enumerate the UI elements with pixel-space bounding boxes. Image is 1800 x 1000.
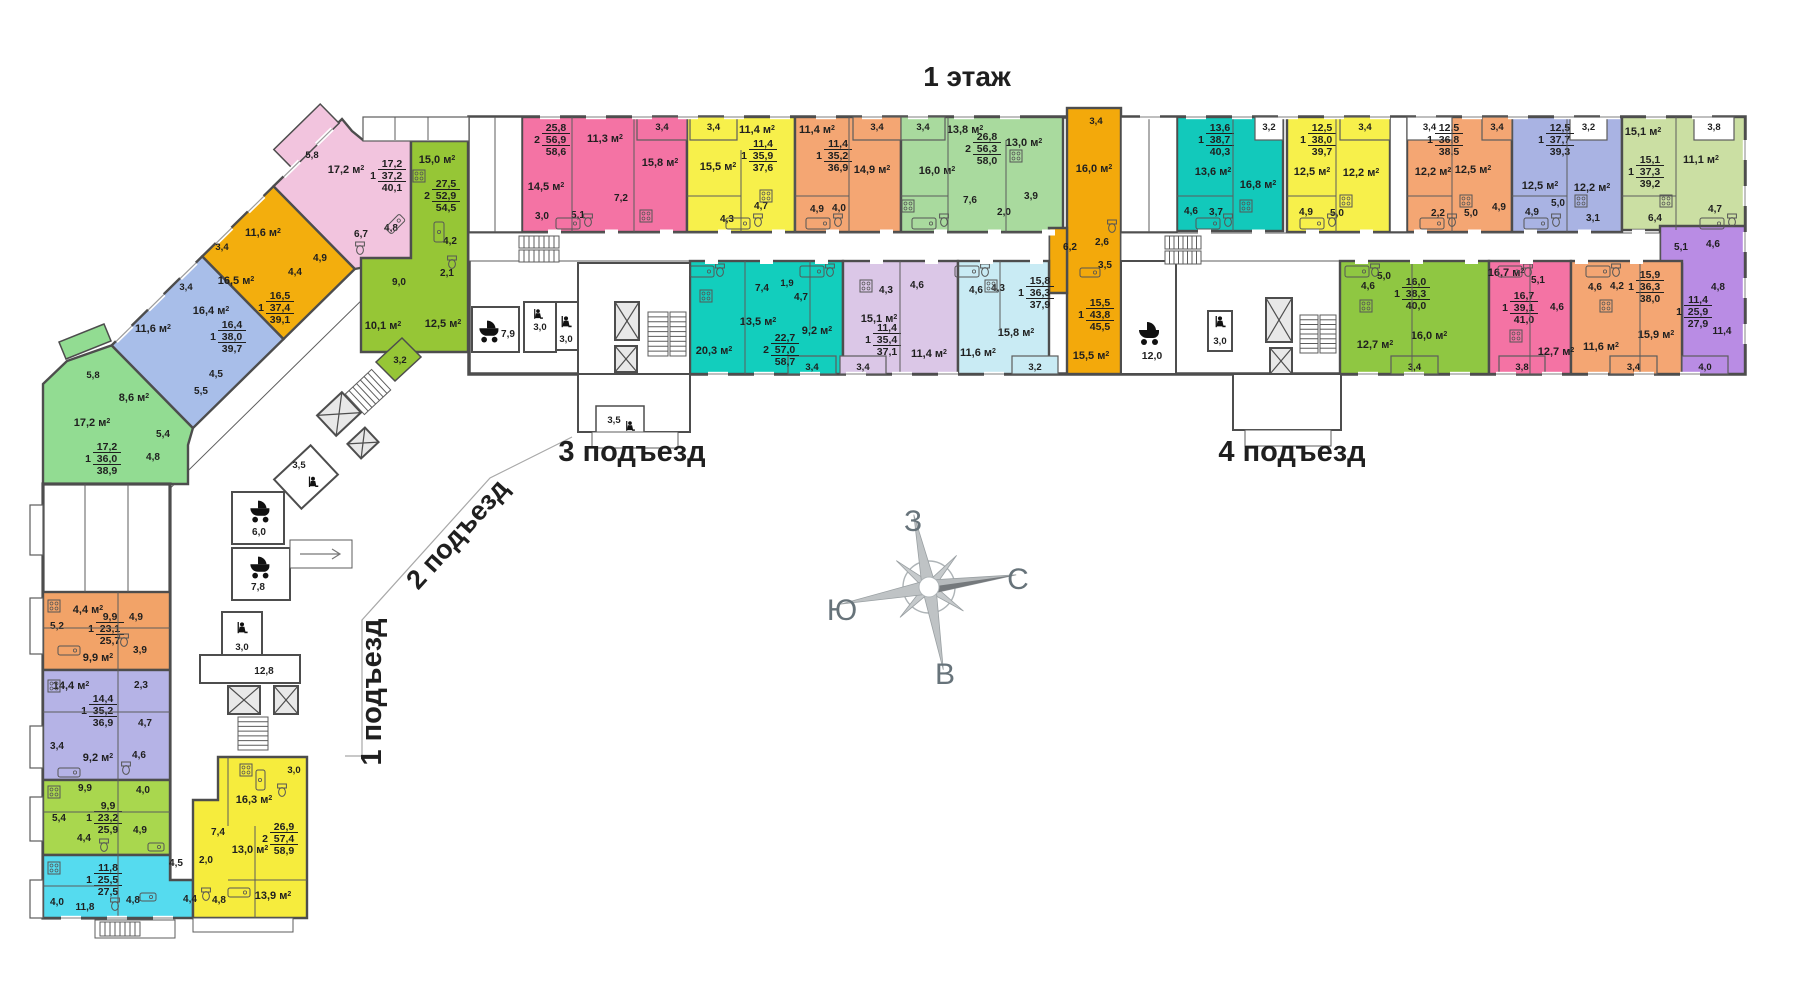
svg-text:4,7: 4,7 <box>754 201 768 212</box>
svg-text:1: 1 <box>1538 134 1544 146</box>
svg-text:1,9: 1,9 <box>780 278 793 289</box>
svg-text:37,9: 37,9 <box>1030 299 1051 311</box>
svg-text:11,4: 11,4 <box>1713 326 1732 337</box>
svg-text:2,3: 2,3 <box>134 680 148 691</box>
svg-text:1: 1 <box>258 302 264 314</box>
svg-text:2: 2 <box>763 344 769 356</box>
svg-text:16,4: 16,4 <box>222 319 243 331</box>
svg-text:26,9: 26,9 <box>274 821 295 833</box>
svg-text:11,8: 11,8 <box>76 902 95 913</box>
svg-text:41,0: 41,0 <box>1514 314 1535 326</box>
svg-text:35,2: 35,2 <box>828 150 849 162</box>
svg-text:4,6: 4,6 <box>1361 281 1375 292</box>
svg-text:16,0 м2: 16,0 м2 <box>1076 163 1113 175</box>
svg-text:3,4: 3,4 <box>916 122 930 133</box>
svg-text:37,4: 37,4 <box>270 302 291 314</box>
svg-text:4,4: 4,4 <box>77 833 91 844</box>
svg-text:22,7: 22,7 <box>775 332 796 344</box>
svg-text:11,4: 11,4 <box>877 322 897 334</box>
svg-text:3,0: 3,0 <box>533 322 546 333</box>
svg-text:17,2 м2: 17,2 м2 <box>74 417 111 429</box>
svg-text:11,4 м2: 11,4 м2 <box>799 124 835 136</box>
svg-text:13,6 м2: 13,6 м2 <box>1195 166 1232 178</box>
svg-text:56,9: 56,9 <box>546 134 567 146</box>
svg-text:5,4: 5,4 <box>156 429 170 440</box>
svg-text:4,2: 4,2 <box>443 236 457 247</box>
svg-text:13,9 м2: 13,9 м2 <box>255 890 292 902</box>
svg-text:58,7: 58,7 <box>775 356 796 368</box>
svg-text:12,5 м2: 12,5 м2 <box>1455 164 1492 176</box>
svg-text:В: В <box>935 658 955 691</box>
svg-text:11,6 м2: 11,6 м2 <box>960 347 996 359</box>
svg-text:4,5: 4,5 <box>209 369 223 380</box>
svg-text:38,0: 38,0 <box>1312 134 1333 146</box>
svg-text:58,0: 58,0 <box>977 155 998 167</box>
svg-text:3,4: 3,4 <box>50 741 64 752</box>
svg-text:4,3: 4,3 <box>879 285 893 296</box>
svg-text:13,0 м2: 13,0 м2 <box>232 844 269 856</box>
svg-text:9,9: 9,9 <box>103 611 118 623</box>
svg-text:4,3: 4,3 <box>720 214 734 225</box>
svg-text:4,4 м2: 4,4 м2 <box>73 604 104 616</box>
svg-text:1: 1 <box>81 705 87 717</box>
svg-text:С: С <box>1007 563 1029 596</box>
svg-text:8,6 м2: 8,6 м2 <box>119 392 150 404</box>
svg-text:1: 1 <box>86 812 92 824</box>
svg-text:40,1: 40,1 <box>382 182 403 194</box>
svg-text:4,0: 4,0 <box>50 897 64 908</box>
svg-text:36,3: 36,3 <box>1030 287 1051 299</box>
svg-text:4,0: 4,0 <box>136 785 150 796</box>
svg-text:3,4: 3,4 <box>215 242 229 253</box>
svg-text:26,8: 26,8 <box>977 131 998 143</box>
svg-text:5,2: 5,2 <box>50 621 64 632</box>
svg-text:3,2: 3,2 <box>1262 122 1275 133</box>
svg-text:3,8: 3,8 <box>1515 362 1528 373</box>
svg-text:4,0: 4,0 <box>1698 362 1711 373</box>
svg-text:7,2: 7,2 <box>614 193 628 204</box>
svg-text:5,5: 5,5 <box>194 386 208 397</box>
svg-text:9,9: 9,9 <box>101 800 116 812</box>
svg-text:38,0: 38,0 <box>1640 293 1661 305</box>
svg-text:9,2 м2: 9,2 м2 <box>802 325 833 337</box>
svg-text:7,9: 7,9 <box>501 329 515 340</box>
svg-text:9,0: 9,0 <box>392 277 406 288</box>
svg-text:15,8: 15,8 <box>1030 275 1051 287</box>
svg-text:12,2 м2: 12,2 м2 <box>1343 167 1380 179</box>
svg-text:5,1: 5,1 <box>1674 242 1688 253</box>
svg-text:4,6: 4,6 <box>1184 206 1198 217</box>
svg-text:4,6: 4,6 <box>910 280 924 291</box>
svg-text:2,0: 2,0 <box>199 855 213 866</box>
svg-text:4,9: 4,9 <box>810 204 824 215</box>
svg-text:3,4: 3,4 <box>1408 362 1422 373</box>
svg-text:38,3: 38,3 <box>1406 288 1427 300</box>
svg-text:27,5: 27,5 <box>436 178 457 190</box>
svg-text:15,0 м2: 15,0 м2 <box>419 154 456 166</box>
svg-text:7,6: 7,6 <box>963 195 977 206</box>
svg-text:57,4: 57,4 <box>274 833 295 845</box>
svg-text:1: 1 <box>1018 287 1024 299</box>
svg-text:1: 1 <box>1628 281 1634 293</box>
svg-text:5,0: 5,0 <box>1464 208 1478 219</box>
svg-text:3,2: 3,2 <box>1582 122 1595 133</box>
svg-text:3,4: 3,4 <box>707 122 721 133</box>
svg-text:12,5 м2: 12,5 м2 <box>1522 180 1559 192</box>
svg-text:3,4: 3,4 <box>1423 122 1437 133</box>
svg-text:15,1: 15,1 <box>1640 154 1661 166</box>
svg-text:4,6: 4,6 <box>969 285 983 296</box>
svg-text:16,0 м2: 16,0 м2 <box>919 165 956 177</box>
svg-text:12,5 м2: 12,5 м2 <box>425 318 462 330</box>
svg-text:3,4: 3,4 <box>1089 116 1103 127</box>
svg-text:3,8: 3,8 <box>1707 122 1720 133</box>
svg-text:15,8 м2: 15,8 м2 <box>642 157 679 169</box>
svg-text:4,8: 4,8 <box>1711 282 1725 293</box>
svg-text:12,8: 12,8 <box>254 666 274 677</box>
svg-text:1: 1 <box>85 453 91 465</box>
svg-text:16,8 м2: 16,8 м2 <box>1240 179 1277 191</box>
svg-text:37,6: 37,6 <box>753 162 774 174</box>
svg-text:39,2: 39,2 <box>1640 178 1661 190</box>
svg-text:1: 1 <box>1198 134 1204 146</box>
svg-text:56,3: 56,3 <box>977 143 998 155</box>
svg-text:4,9: 4,9 <box>1492 202 1506 213</box>
svg-text:4,9: 4,9 <box>129 612 143 623</box>
svg-text:9,9 м2: 9,9 м2 <box>83 652 114 664</box>
svg-text:3 подъезд: 3 подъезд <box>558 436 705 468</box>
svg-text:4,0: 4,0 <box>832 203 846 214</box>
svg-text:4,4: 4,4 <box>288 267 302 278</box>
svg-text:15,1 м2: 15,1 м2 <box>1625 126 1662 138</box>
svg-text:12,2 м2: 12,2 м2 <box>1574 182 1611 194</box>
svg-text:12,7 м2: 12,7 м2 <box>1538 346 1575 358</box>
svg-text:9,9: 9,9 <box>78 783 92 794</box>
svg-text:35,9: 35,9 <box>753 150 774 162</box>
svg-text:11,4 м2: 11,4 м2 <box>739 124 775 136</box>
svg-text:36,8: 36,8 <box>1439 134 1460 146</box>
svg-text:4,9: 4,9 <box>133 825 147 836</box>
svg-text:14,9 м2: 14,9 м2 <box>854 164 891 176</box>
svg-text:3,4: 3,4 <box>856 362 870 373</box>
svg-text:1: 1 <box>88 623 94 635</box>
svg-text:3,4: 3,4 <box>805 362 819 373</box>
svg-text:4,9: 4,9 <box>313 253 327 264</box>
svg-text:6,0: 6,0 <box>252 527 266 538</box>
svg-text:4,6: 4,6 <box>1550 302 1564 313</box>
svg-text:36,0: 36,0 <box>97 453 118 465</box>
svg-text:7,4: 7,4 <box>211 827 225 838</box>
svg-text:12,2 м2: 12,2 м2 <box>1415 166 1452 178</box>
svg-text:1: 1 <box>816 150 822 162</box>
svg-text:3,4: 3,4 <box>1490 122 1504 133</box>
svg-text:11,3 м2: 11,3 м2 <box>587 133 623 145</box>
svg-text:23,1: 23,1 <box>100 623 121 635</box>
svg-text:3,5: 3,5 <box>292 460 306 471</box>
svg-text:4,7: 4,7 <box>794 292 808 303</box>
svg-text:23,2: 23,2 <box>98 812 119 824</box>
svg-text:1: 1 <box>210 331 216 343</box>
svg-text:16,7: 16,7 <box>1514 290 1535 302</box>
svg-text:15,5: 15,5 <box>1090 297 1111 309</box>
svg-text:15,5 м2: 15,5 м2 <box>1073 350 1110 362</box>
svg-text:2: 2 <box>965 143 971 155</box>
svg-text:11,4: 11,4 <box>753 138 773 150</box>
svg-text:17,2: 17,2 <box>382 158 403 170</box>
svg-text:7,4: 7,4 <box>755 283 769 294</box>
svg-text:2,6: 2,6 <box>1095 237 1109 248</box>
svg-text:37,2: 37,2 <box>382 170 403 182</box>
svg-text:1: 1 <box>86 874 92 886</box>
svg-text:4,6: 4,6 <box>132 750 146 761</box>
svg-text:1: 1 <box>1427 134 1433 146</box>
svg-text:1: 1 <box>865 334 871 346</box>
svg-text:39,1: 39,1 <box>1514 302 1535 314</box>
svg-text:37,3: 37,3 <box>1640 166 1661 178</box>
svg-text:4,8: 4,8 <box>212 895 226 906</box>
svg-text:4,7: 4,7 <box>138 718 152 729</box>
svg-text:27,9: 27,9 <box>1688 318 1709 330</box>
svg-text:6,4: 6,4 <box>1648 213 1662 224</box>
svg-text:5,8: 5,8 <box>305 150 318 161</box>
svg-text:11,4: 11,4 <box>828 138 848 150</box>
svg-text:17,2: 17,2 <box>97 441 118 453</box>
svg-text:16,0 м2: 16,0 м2 <box>1411 330 1448 342</box>
svg-text:36,3: 36,3 <box>1640 281 1661 293</box>
svg-text:4,2: 4,2 <box>1610 281 1624 292</box>
svg-text:3,4: 3,4 <box>655 122 669 133</box>
svg-text:15,9 м2: 15,9 м2 <box>1638 329 1675 341</box>
svg-text:2,2: 2,2 <box>1431 208 1445 219</box>
svg-text:4,9: 4,9 <box>1299 207 1313 218</box>
svg-text:36,9: 36,9 <box>828 162 849 174</box>
svg-text:4,8: 4,8 <box>146 452 160 463</box>
svg-text:3,0: 3,0 <box>535 211 549 222</box>
svg-text:39,7: 39,7 <box>222 343 243 355</box>
svg-text:16,5 м2: 16,5 м2 <box>218 275 255 287</box>
svg-text:3,2: 3,2 <box>1028 362 1041 373</box>
svg-text:14,5 м2: 14,5 м2 <box>528 181 565 193</box>
svg-text:16,3 м2: 16,3 м2 <box>236 794 273 806</box>
svg-text:4,6: 4,6 <box>1588 282 1602 293</box>
svg-text:12,5 м2: 12,5 м2 <box>1294 166 1331 178</box>
svg-text:20,3 м2: 20,3 м2 <box>696 345 733 357</box>
svg-text:3,0: 3,0 <box>1213 336 1226 347</box>
svg-text:38,0: 38,0 <box>222 331 243 343</box>
svg-text:5,4: 5,4 <box>52 813 66 824</box>
svg-text:25,7: 25,7 <box>100 635 121 647</box>
svg-text:3,0: 3,0 <box>559 334 572 345</box>
svg-text:З: З <box>904 505 922 538</box>
svg-text:14,4: 14,4 <box>93 693 114 705</box>
svg-text:17,2 м2: 17,2 м2 <box>328 164 365 176</box>
svg-text:11,8: 11,8 <box>98 862 118 874</box>
svg-text:38,5: 38,5 <box>1439 146 1460 158</box>
svg-text:12,5: 12,5 <box>1312 122 1333 134</box>
svg-text:11,4 м2: 11,4 м2 <box>911 348 947 360</box>
svg-text:1: 1 <box>1394 288 1400 300</box>
svg-text:1: 1 <box>1676 306 1682 318</box>
svg-text:1: 1 <box>1078 309 1084 321</box>
svg-text:40,0: 40,0 <box>1406 300 1427 312</box>
svg-text:4,8: 4,8 <box>126 895 140 906</box>
svg-text:13,0 м2: 13,0 м2 <box>1006 137 1043 149</box>
svg-text:3,4: 3,4 <box>179 282 193 293</box>
svg-text:9,2 м2: 9,2 м2 <box>83 752 114 764</box>
svg-text:4,9: 4,9 <box>1525 207 1539 218</box>
svg-text:4 подъезд: 4 подъезд <box>1218 436 1365 468</box>
svg-text:15,8 м2: 15,8 м2 <box>998 327 1035 339</box>
svg-text:16,5: 16,5 <box>270 290 291 302</box>
svg-text:11,6 м2: 11,6 м2 <box>245 227 281 239</box>
svg-text:25,9: 25,9 <box>98 824 119 836</box>
svg-text:4,6: 4,6 <box>1706 239 1720 250</box>
svg-text:12,0: 12,0 <box>1142 350 1163 362</box>
svg-text:11,6 м2: 11,6 м2 <box>1583 341 1619 353</box>
svg-text:43,8: 43,8 <box>1090 309 1111 321</box>
svg-text:38,7: 38,7 <box>1210 134 1231 146</box>
svg-text:2,0: 2,0 <box>997 207 1011 218</box>
svg-text:40,3: 40,3 <box>1210 146 1231 158</box>
svg-text:4,7: 4,7 <box>1708 204 1722 215</box>
svg-text:1 этаж: 1 этаж <box>923 61 1012 92</box>
svg-text:58,6: 58,6 <box>546 146 567 158</box>
svg-text:3,9: 3,9 <box>133 645 147 656</box>
svg-text:2: 2 <box>534 134 540 146</box>
svg-text:13,6: 13,6 <box>1210 122 1231 134</box>
svg-text:3,1: 3,1 <box>1586 213 1600 224</box>
svg-text:3,9: 3,9 <box>1024 191 1038 202</box>
svg-text:1: 1 <box>1628 166 1634 178</box>
svg-text:14,4 м2: 14,4 м2 <box>53 680 90 692</box>
svg-text:1 подъезд: 1 подъезд <box>356 618 388 765</box>
svg-text:4,5: 4,5 <box>169 858 183 869</box>
svg-text:15,5 м2: 15,5 м2 <box>700 161 737 173</box>
svg-text:11,1 м2: 11,1 м2 <box>1683 154 1719 166</box>
svg-text:36,9: 36,9 <box>93 717 114 729</box>
svg-text:5,8: 5,8 <box>86 370 99 381</box>
svg-text:12,7 м2: 12,7 м2 <box>1357 339 1394 351</box>
svg-text:52,9: 52,9 <box>436 190 457 202</box>
svg-text:2,1: 2,1 <box>440 268 454 279</box>
svg-text:25,9: 25,9 <box>1688 306 1709 318</box>
svg-text:12,5: 12,5 <box>1439 122 1460 134</box>
svg-text:25,5: 25,5 <box>98 874 119 886</box>
svg-text:35,4: 35,4 <box>877 334 898 346</box>
svg-text:3,0: 3,0 <box>235 642 248 653</box>
svg-text:27,5: 27,5 <box>98 886 119 898</box>
svg-text:11,4: 11,4 <box>1688 294 1708 306</box>
svg-text:11,6 м2: 11,6 м2 <box>135 323 171 335</box>
svg-text:10,1 м2: 10,1 м2 <box>365 320 402 332</box>
svg-text:3,4: 3,4 <box>1358 122 1372 133</box>
svg-text:3,4: 3,4 <box>1627 362 1641 373</box>
svg-text:15,9: 15,9 <box>1640 269 1661 281</box>
svg-text:3,2: 3,2 <box>393 355 406 366</box>
svg-text:2: 2 <box>424 190 430 202</box>
svg-text:1: 1 <box>1502 302 1508 314</box>
svg-text:16,0: 16,0 <box>1406 276 1427 288</box>
svg-text:5,0: 5,0 <box>1377 271 1391 282</box>
svg-text:39,7: 39,7 <box>1312 146 1333 158</box>
svg-text:4,4: 4,4 <box>183 894 197 905</box>
svg-text:1: 1 <box>1300 134 1306 146</box>
svg-text:5,0: 5,0 <box>1551 198 1565 209</box>
svg-text:3,7: 3,7 <box>1209 207 1223 218</box>
svg-text:1: 1 <box>370 170 376 182</box>
svg-text:7,8: 7,8 <box>251 582 265 593</box>
svg-text:16,4 м2: 16,4 м2 <box>193 305 230 317</box>
svg-text:1: 1 <box>741 150 747 162</box>
svg-text:45,5: 45,5 <box>1090 321 1111 333</box>
svg-text:35,2: 35,2 <box>93 705 114 717</box>
svg-text:38,9: 38,9 <box>97 465 118 477</box>
svg-text:25,8: 25,8 <box>546 122 567 134</box>
svg-text:37,1: 37,1 <box>877 346 898 358</box>
svg-text:39,1: 39,1 <box>270 314 291 326</box>
svg-text:58,9: 58,9 <box>274 845 295 857</box>
svg-text:6,7: 6,7 <box>354 229 368 240</box>
svg-text:3,0: 3,0 <box>287 765 300 776</box>
svg-text:5,1: 5,1 <box>1531 275 1545 286</box>
svg-text:57,0: 57,0 <box>775 344 796 356</box>
svg-text:54,5: 54,5 <box>436 202 457 214</box>
svg-text:Ю: Ю <box>827 594 857 627</box>
svg-text:6,2: 6,2 <box>1063 242 1077 253</box>
svg-text:3,5: 3,5 <box>607 415 621 426</box>
svg-text:3,4: 3,4 <box>870 122 884 133</box>
